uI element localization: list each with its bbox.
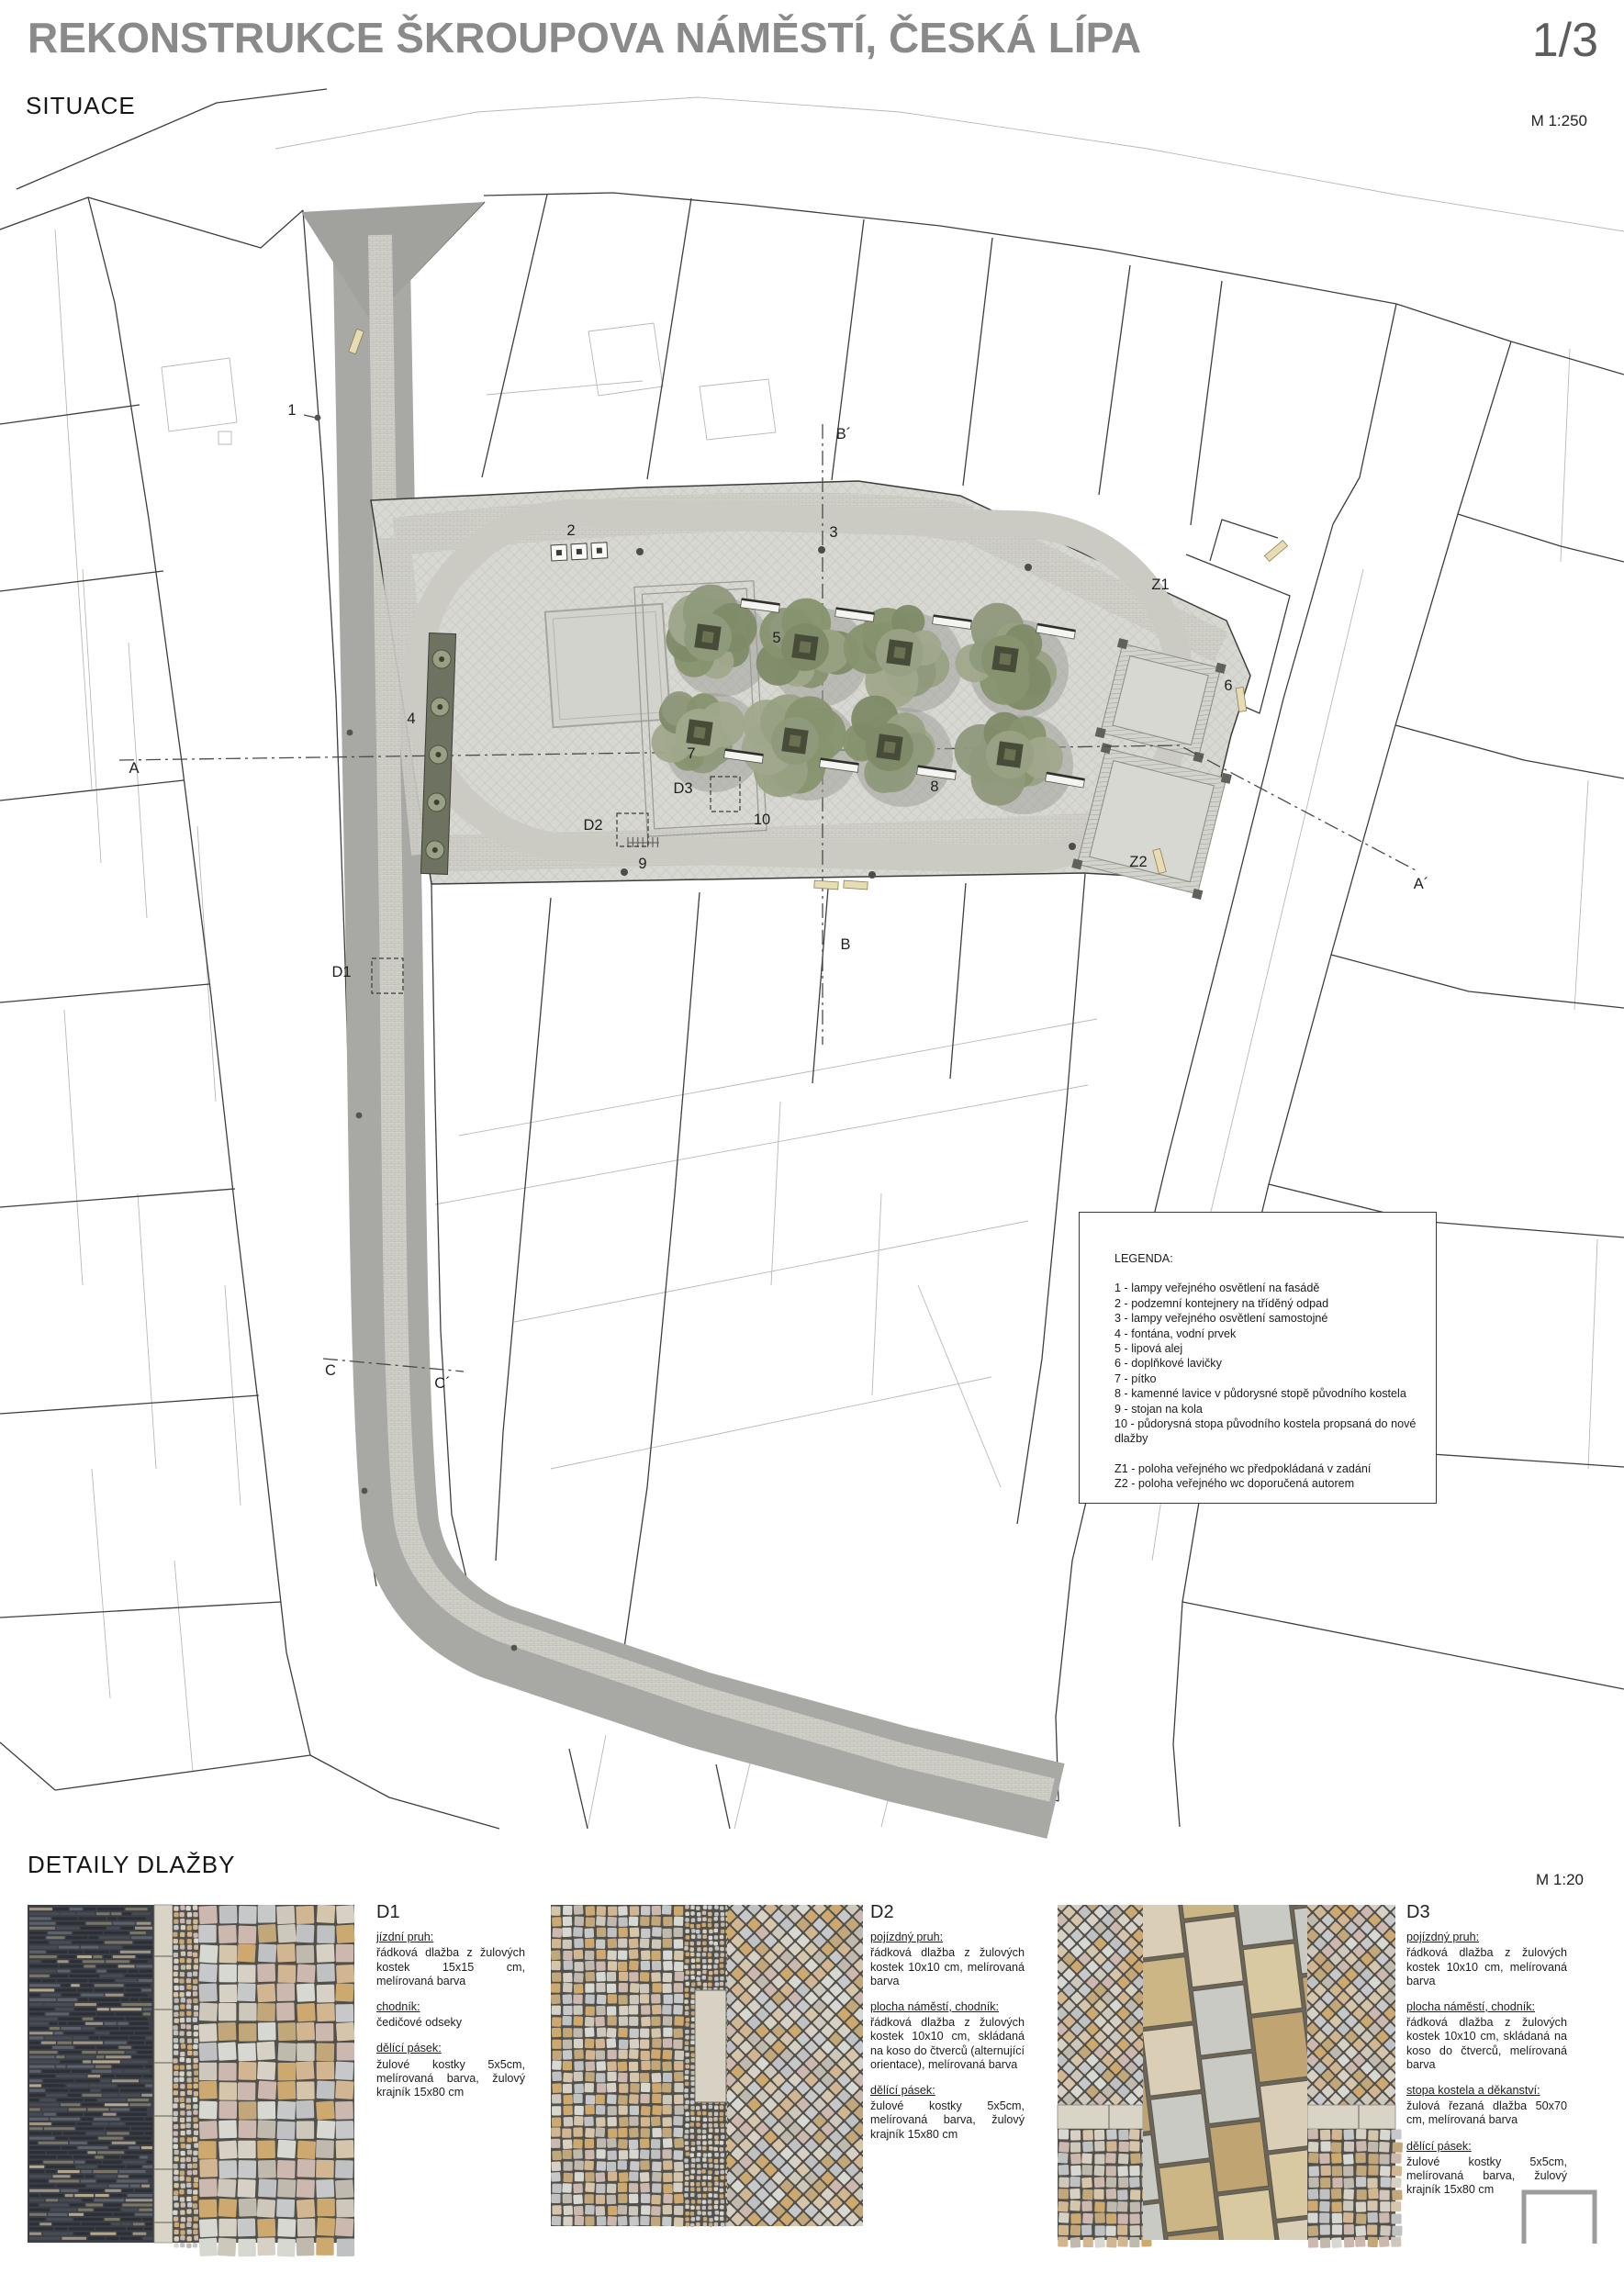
plan-label-2: 2 — [566, 522, 575, 539]
detail-heading: jízdní pruh: — [376, 1931, 525, 1944]
lamp-icon — [621, 868, 628, 876]
detail-body: žulová řezaná dlažba 50x70 cm, melírovan… — [1406, 2099, 1567, 2127]
plan-label-C´: C´ — [434, 1375, 450, 1392]
detail-heading: chodník: — [376, 2000, 525, 2014]
plan-label-9: 9 — [638, 856, 646, 872]
legend-item: 9 - stojan na kola — [1114, 1402, 1417, 1416]
lamp-icon — [1069, 843, 1076, 850]
detail-code: D3 — [1406, 1906, 1567, 1920]
section-title-detaily: DETAILY DLAŽBY — [28, 1851, 235, 1879]
detail-body: žulové kostky 5x5cm, melírovaná barva, ž… — [870, 2099, 1025, 2142]
detail-heading: pojízdný pruh: — [870, 1931, 1025, 1944]
legend-item: 1 - lampy veřejného osvětlení na fasádě — [1114, 1281, 1417, 1295]
plan-label-6: 6 — [1224, 677, 1232, 694]
plan-label-D1: D1 — [331, 964, 351, 980]
label-1-leader — [304, 415, 316, 418]
waste-containers-icon — [551, 543, 608, 561]
plan-label-D3: D3 — [673, 780, 692, 797]
plan-label-1: 1 — [287, 402, 296, 419]
legend-item: Z2 - poloha veřejného wc doporučená auto… — [1114, 1476, 1417, 1491]
plan-label-10: 10 — [754, 812, 770, 828]
detail-body: žulové kostky 5x5cm, melírovaná barva, ž… — [376, 2058, 525, 2100]
legend-z-items: Z1 - poloha veřejného wc předpokládaná v… — [1114, 1461, 1417, 1492]
detail-body: řádková dlažba z žulových kostek 15x15 c… — [376, 1946, 525, 1988]
legend-title: LEGENDA: — [1114, 1251, 1417, 1266]
plan-label-C: C — [325, 1362, 336, 1379]
legend-item: 2 - podzemní kontejnery na tříděný odpad — [1114, 1296, 1417, 1311]
scale-detaily: M 1:20 — [1536, 1871, 1584, 1889]
event-area — [545, 604, 670, 728]
plan-label-B´: B´ — [836, 426, 852, 442]
lamp-icon — [818, 546, 825, 554]
legend-item: Z1 - poloha veřejného wc předpokládaná v… — [1114, 1461, 1417, 1476]
legend-item: 4 - fontána, vodní prvek — [1114, 1327, 1417, 1341]
detail-heading: plocha náměstí, chodník: — [1406, 2000, 1567, 2014]
plan-label-4: 4 — [407, 711, 415, 727]
plan-label-B: B — [840, 936, 850, 953]
facade-lamp-icon — [362, 1488, 368, 1495]
lamp-icon — [868, 871, 876, 879]
parcel-lines-light — [55, 97, 1624, 1829]
main-street — [371, 213, 1056, 1801]
legend-items: 1 - lampy veřejného osvětlení na fasádě2… — [1114, 1281, 1417, 1446]
facade-lamp-icon — [511, 1645, 518, 1651]
plan-label-7: 7 — [687, 745, 695, 762]
legend-box: LEGENDA: 1 - lampy veřejného osvětlení n… — [1079, 1212, 1437, 1504]
detail-text-d3: D3pojízdný pruh:řádková dlažba z žulovýc… — [1406, 1906, 1567, 2209]
facade-lamp-icon — [356, 1113, 363, 1119]
scale-situace: M 1:250 — [1531, 112, 1587, 130]
legend-item: 10 - půdorysná stopa původního kostela p… — [1114, 1416, 1417, 1447]
detail-body: řádková dlažba z žulových kostek 10x10 c… — [1406, 2016, 1567, 2072]
detail-heading: dělící pásek: — [376, 2042, 525, 2055]
detail-body: žulové kostky 5x5cm, melírovaná barva, ž… — [1406, 2155, 1567, 2198]
facade-lamp-icon — [347, 730, 353, 736]
detail-heading: dělící pásek: — [1406, 2140, 1567, 2154]
lamp-icon — [636, 548, 644, 555]
plan-label-5: 5 — [772, 630, 780, 646]
street-sidewalk — [380, 235, 1052, 1790]
facade-lamp-icon — [315, 415, 321, 421]
legend-item: 5 - lipová alej — [1114, 1341, 1417, 1356]
legend-item: 3 - lampy veřejného osvětlení samostojné — [1114, 1311, 1417, 1326]
site-plan: 12345678910Z1Z2AA´BB´CC´D1D2D3 — [0, 0, 1624, 2295]
detail-heading: plocha náměstí, chodník: — [870, 2000, 1025, 2014]
wood-bench-icon — [844, 880, 868, 890]
detail-body: řádková dlažba z žulových kostek 10x10 c… — [870, 2016, 1025, 2072]
plan-label-Z1: Z1 — [1151, 577, 1169, 593]
legend-item: 6 - doplňkové lavičky — [1114, 1356, 1417, 1371]
detail-code: D1 — [376, 1906, 525, 1920]
parcel-lines-dark — [0, 89, 1624, 1829]
plan-label-Z2: Z2 — [1129, 854, 1147, 870]
lamp-icon — [1025, 564, 1032, 571]
section-title-situace: SITUACE — [26, 92, 136, 120]
drawing-sheet: 12345678910Z1Z2AA´BB´CC´D1D2D3 REKONSTRU… — [0, 0, 1624, 2295]
detail-code: D2 — [870, 1906, 1025, 1920]
detail-body: čedičové odseky — [376, 2016, 525, 2030]
detail-heading: dělící pásek: — [870, 2084, 1025, 2098]
detail-heading: stopa kostela a děkanství: — [1406, 2084, 1567, 2098]
page-number: 1/3 — [1532, 13, 1598, 68]
legend-item: 8 - kamenné lavice v půdorysné stopě pův… — [1114, 1386, 1417, 1401]
plan-label-D2: D2 — [583, 817, 602, 834]
detail-heading: pojízdný pruh: — [1406, 1931, 1567, 1944]
photo-d1 — [28, 1905, 355, 2257]
detail-body: řádková dlažba z žulových kostek 10x10 c… — [1406, 1946, 1567, 1988]
detail-text-d2: D2pojízdný pruh:řádková dlažba z žulovýc… — [870, 1906, 1025, 2154]
plan-label-8: 8 — [930, 778, 938, 795]
legend-item: 7 - pítko — [1114, 1371, 1417, 1386]
detail-body: řádková dlažba z žulových kostek 10x10 c… — [870, 1946, 1025, 1988]
detail-text-d1: D1jízdní pruh:řádková dlažba z žulových … — [376, 1906, 525, 2111]
wood-bench-icon — [1264, 541, 1287, 562]
plan-label-3: 3 — [829, 524, 837, 541]
page-title: REKONSTRUKCE ŠKROUPOVA NÁMĚSTÍ, ČESKÁ LÍ… — [28, 13, 1141, 62]
plan-label-A: A — [129, 760, 139, 777]
plan-label-A´: A´ — [1414, 876, 1429, 892]
wood-bench-icon — [814, 880, 838, 890]
